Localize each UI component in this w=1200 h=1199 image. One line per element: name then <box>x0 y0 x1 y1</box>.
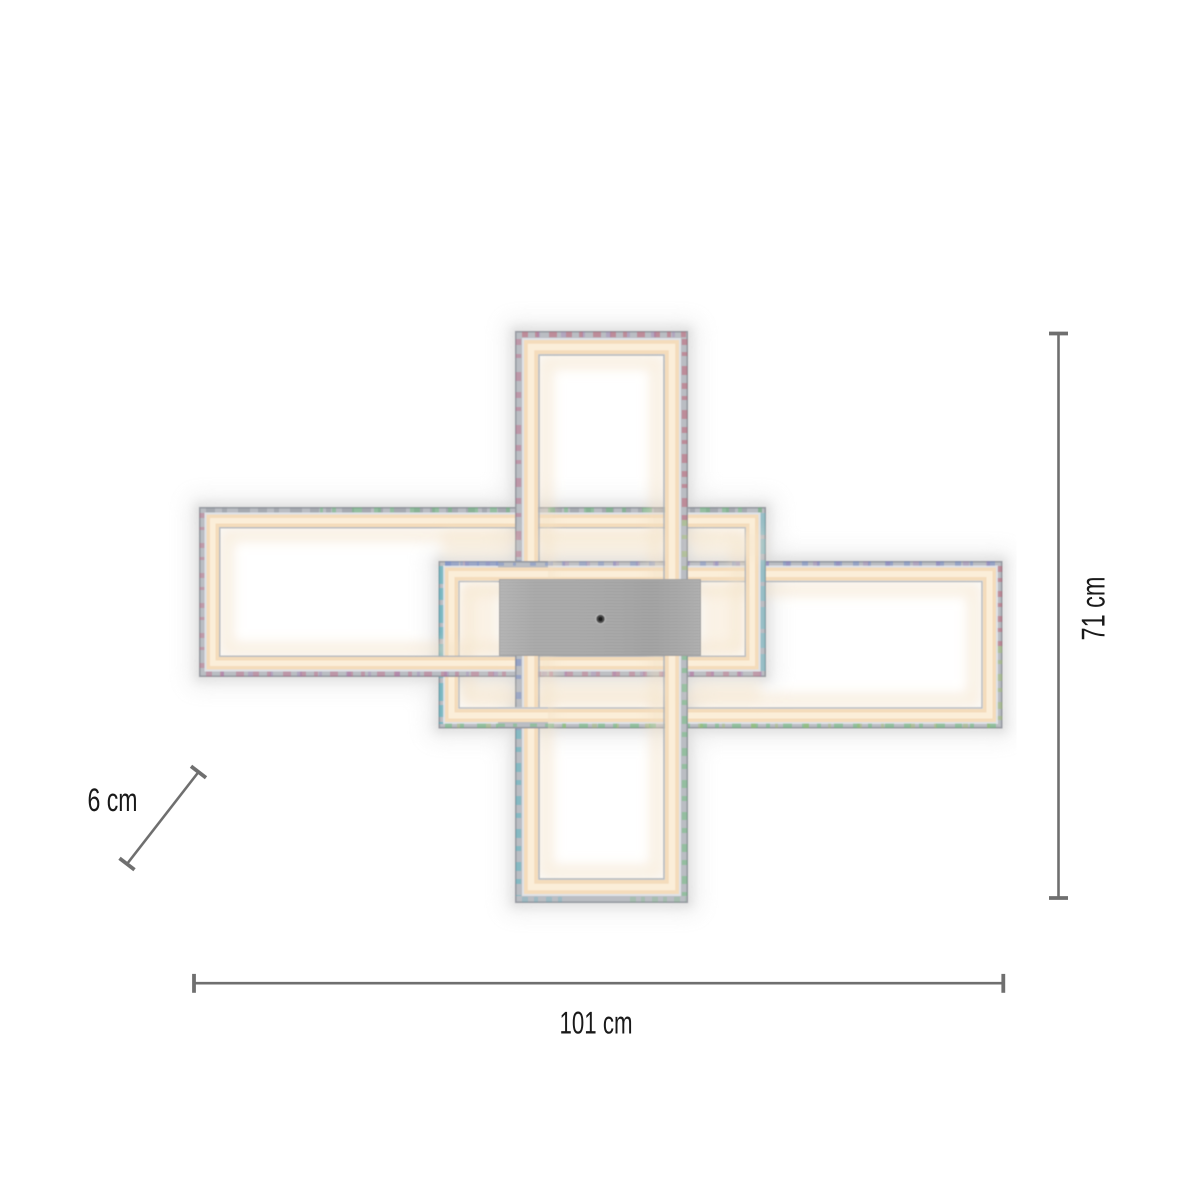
svg-text:6 cm: 6 cm <box>88 782 138 818</box>
svg-text:101 cm: 101 cm <box>560 1005 633 1041</box>
svg-text:71 cm: 71 cm <box>1075 577 1112 641</box>
